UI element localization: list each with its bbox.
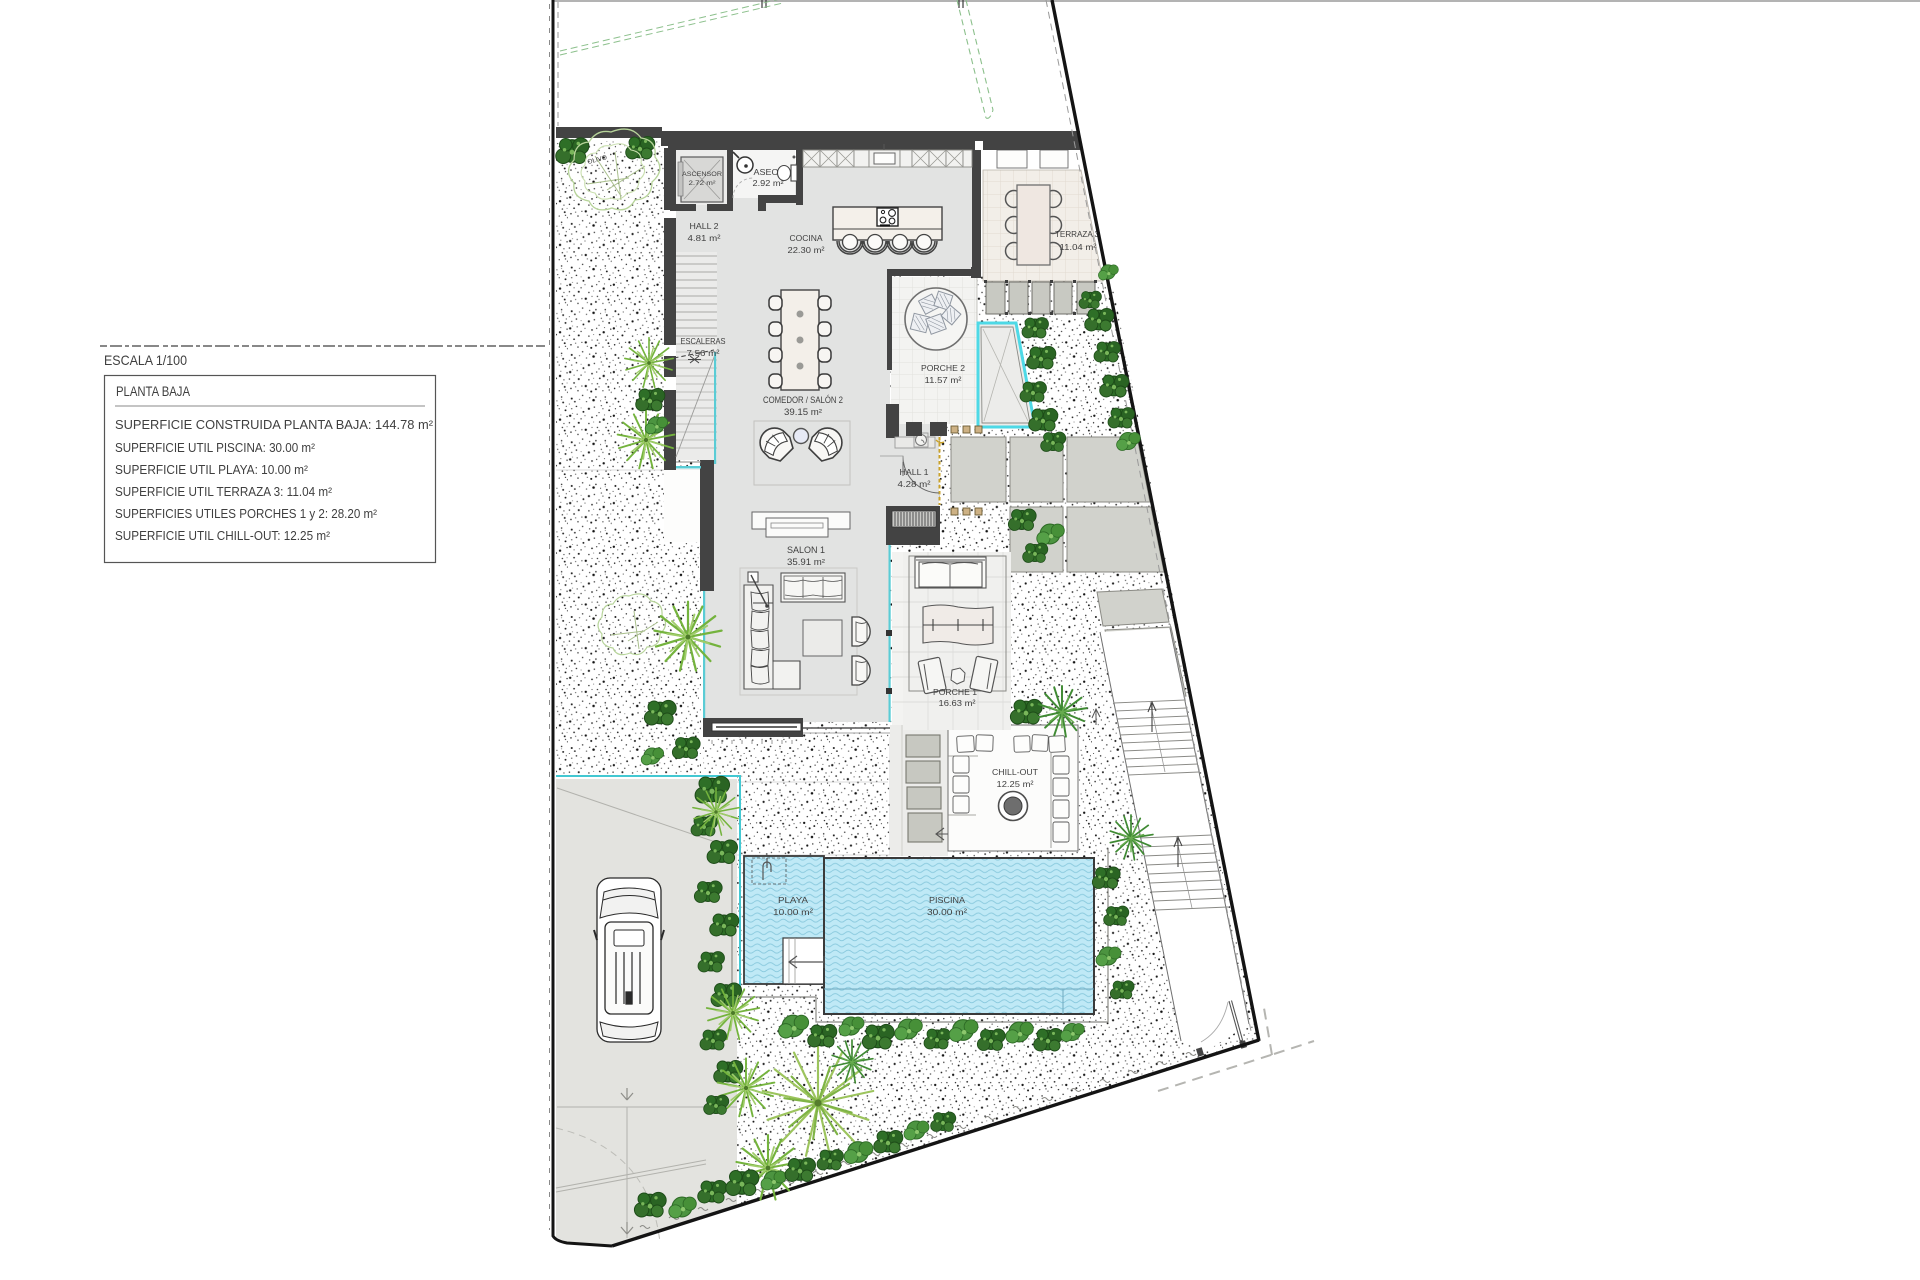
svg-text:12.25 m²: 12.25 m² xyxy=(997,779,1034,789)
svg-text:ESCALA 1/100: ESCALA 1/100 xyxy=(104,352,187,368)
svg-text:SUPERFICIE UTIL TERRAZA 3: 11.: SUPERFICIE UTIL TERRAZA 3: 11.04 m² xyxy=(115,484,333,499)
svg-text:TERRAZA 3: TERRAZA 3 xyxy=(1055,229,1099,239)
svg-text:ASCENSOR: ASCENSOR xyxy=(682,171,722,178)
svg-text:11.57 m²: 11.57 m² xyxy=(925,375,962,385)
svg-text:SUPERFICIE UTIL PLAYA: 10.00 m: SUPERFICIE UTIL PLAYA: 10.00 m² xyxy=(115,462,309,477)
svg-text:7.56 m²: 7.56 m² xyxy=(687,348,720,358)
svg-text:PLAYA: PLAYA xyxy=(778,895,808,905)
svg-text:SUPERFICIE CONSTRUIDA PLANTA B: SUPERFICIE CONSTRUIDA PLANTA BAJA: 144.7… xyxy=(115,417,434,432)
svg-text:PORCHE 2: PORCHE 2 xyxy=(921,363,965,373)
svg-text:4.28 m²: 4.28 m² xyxy=(898,479,931,489)
svg-text:CHILL-OUT: CHILL-OUT xyxy=(992,767,1038,777)
svg-text:2.72 m²: 2.72 m² xyxy=(689,180,717,187)
svg-text:PLANTA BAJA: PLANTA BAJA xyxy=(116,383,191,399)
svg-text:35.91 m²: 35.91 m² xyxy=(787,557,825,567)
svg-text:SUPERFICIE UTIL PISCINA: 30.00: SUPERFICIE UTIL PISCINA: 30.00 m² xyxy=(115,440,316,455)
svg-text:COMEDOR / SALÓN 2: COMEDOR / SALÓN 2 xyxy=(763,395,843,405)
svg-text:4.81 m²: 4.81 m² xyxy=(688,233,721,243)
svg-text:ASEO: ASEO xyxy=(754,168,779,177)
svg-text:10.00 m²: 10.00 m² xyxy=(773,907,813,917)
svg-text:11.04 m²: 11.04 m² xyxy=(1060,242,1097,252)
svg-text:SALON 1: SALON 1 xyxy=(787,545,825,555)
svg-text:HALL 1: HALL 1 xyxy=(900,467,929,477)
svg-text:PORCHE 1: PORCHE 1 xyxy=(933,687,977,697)
svg-text:PISCINA: PISCINA xyxy=(929,895,965,905)
svg-text:30.00 m²: 30.00 m² xyxy=(927,907,967,917)
svg-text:COCINA: COCINA xyxy=(790,233,823,243)
svg-text:39.15 m²: 39.15 m² xyxy=(784,407,822,417)
svg-text:22.30 m²: 22.30 m² xyxy=(788,245,825,255)
svg-text:16.63 m²: 16.63 m² xyxy=(939,698,976,708)
svg-text:HALL 2: HALL 2 xyxy=(690,221,719,231)
svg-text:SUPERFICIE UTIL CHILL-OUT: 12.: SUPERFICIE UTIL CHILL-OUT: 12.25 m² xyxy=(115,528,331,543)
svg-text:2.92 m²: 2.92 m² xyxy=(753,179,784,188)
svg-text:ESCALERAS: ESCALERAS xyxy=(681,336,726,346)
svg-text:SUPERFICIES UTILES PORCHES 1 y: SUPERFICIES UTILES PORCHES 1 y 2: 28.20 … xyxy=(115,506,378,521)
